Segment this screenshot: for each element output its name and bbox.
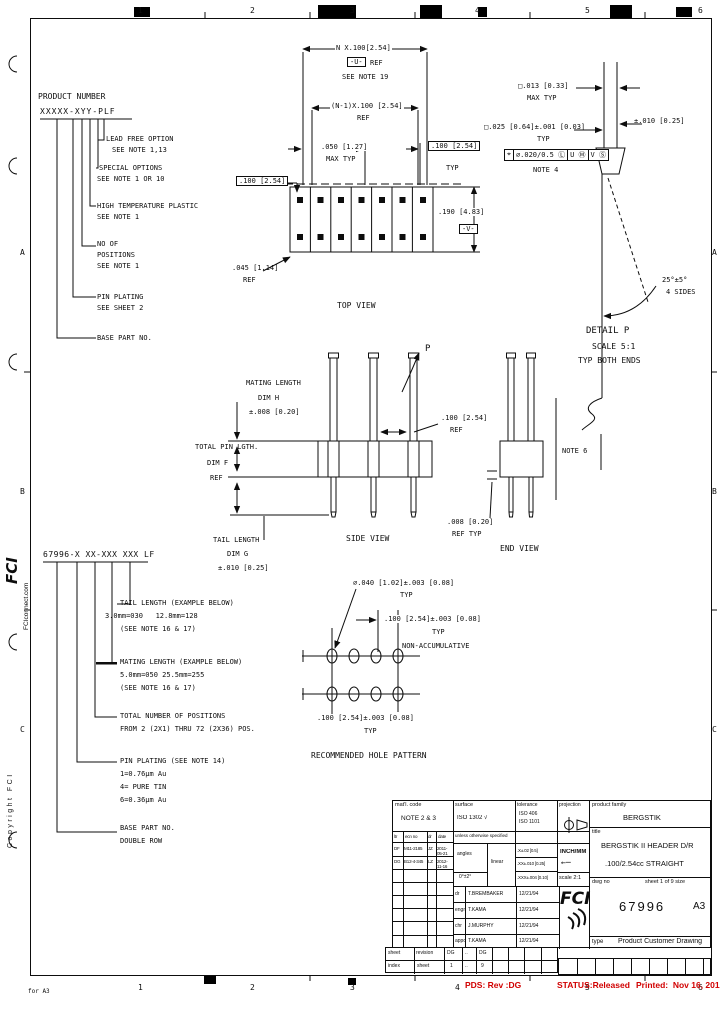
- print-mark: [420, 5, 442, 18]
- dim-025: □.025 [0.64]±.001 [0.03]: [484, 123, 585, 131]
- ecn-row1-date: 2011-05-21: [437, 846, 453, 856]
- registration-marks: [9, 56, 17, 848]
- units-arrow-icon: ←─: [561, 858, 585, 867]
- zone-letter-right-b: B: [712, 487, 717, 496]
- dim-050: .050 [1.27]: [320, 143, 368, 151]
- index-sheet-cell-3: 9: [481, 963, 493, 969]
- callout-positions-1: NO OF: [97, 240, 118, 248]
- detail-angle-sub: 4 SIDES: [666, 288, 696, 296]
- index-label-sheet: sheet: [388, 950, 414, 956]
- zone-letter-left-b: B: [20, 487, 25, 496]
- pn-tail-3: (SEE NOTE 16 & 17): [120, 625, 196, 633]
- ecn-header-dr: dr: [428, 834, 436, 839]
- pn-mating-1: MATING LENGTH (EXAMPLE BELOW): [120, 658, 242, 666]
- matl-code-note: NOTE 2 & 3: [401, 815, 457, 822]
- angles-value: 0°±2°: [459, 874, 489, 880]
- ecn-row2-no: B12-4-345: [404, 859, 427, 864]
- hole-pitch-v: .100 [2.54]±.003 [0.08]: [316, 714, 415, 722]
- ecn-row1-ltr: DF: [394, 846, 403, 851]
- tolerance-label: tolerance: [517, 802, 557, 808]
- dim-013-sub: MAX TYP: [527, 94, 557, 102]
- zone-number-bottom-3: 3: [350, 983, 355, 992]
- zone-letter-left-c: C: [20, 725, 25, 734]
- detail-p-label: DETAIL P: [586, 326, 629, 337]
- part-number-code: 67996-X XX-XXX XXX LF: [43, 550, 155, 559]
- index-sheet-cell-2: ..: [465, 963, 476, 969]
- hole-pattern-drawing: [302, 589, 420, 714]
- callout-pin-plating: PIN PLATING: [97, 293, 143, 301]
- callout-pin-plating-note: SEE SHEET 2: [97, 304, 143, 312]
- ecn-row2-ltr: DG: [394, 859, 403, 864]
- surface-value: ISO 1302 √: [457, 815, 515, 821]
- pn-plating-3: 4= PURE TIN: [120, 783, 166, 791]
- surface-label: surface: [455, 802, 513, 808]
- ecn-row1-dr: JZ: [428, 846, 436, 851]
- side-view-label: SIDE VIEW: [346, 534, 389, 543]
- total-pin-length-label: TOTAL PIN LGTH.: [195, 443, 258, 451]
- fci-margin-logo: FCI: [3, 557, 21, 584]
- dim-008-sub: REF TYP: [452, 530, 482, 538]
- dim-100-left: .100 [2.54]: [236, 176, 288, 186]
- dim-n1-pitch: (N-1)X.100 [2.54]: [330, 102, 404, 110]
- pn-base-1: BASE PART NO.: [120, 824, 175, 832]
- corner-note: for A3: [28, 988, 50, 995]
- linear-label: linear: [491, 859, 517, 865]
- tolerance-value-1: ISO 406: [519, 811, 559, 817]
- hole-pitch-h-sub: TYP: [432, 628, 445, 636]
- signoff-chr-role: chr: [455, 923, 465, 929]
- datum-u-ref: REF: [370, 59, 383, 67]
- pn-base-2: DOUBLE ROW: [120, 837, 162, 845]
- product-number-title: PRODUCT NUMBER: [38, 92, 105, 101]
- dim-013: □.013 [0.33]: [518, 82, 569, 90]
- type-label: type: [592, 939, 616, 945]
- datum-u: -U-: [347, 57, 366, 67]
- bottom-cells-strip: [558, 958, 711, 975]
- hole-dia-sub: TYP: [400, 591, 413, 599]
- dim-190: .190 [4.83]: [437, 208, 485, 216]
- linear-tol-3: .XXX±.004 [0.10]: [517, 875, 557, 880]
- top-view-drawing: [263, 49, 480, 271]
- signoff-appd-date: 12/21/94: [519, 938, 557, 944]
- projection-label: projection: [559, 802, 589, 808]
- fcf-datum-v: V Ⓢ: [588, 149, 609, 161]
- linear-tol-2: .XX±.010 [0.25]: [517, 861, 557, 866]
- dim-100-right: .100 [2.54]: [428, 141, 480, 151]
- side-view-pins: [329, 353, 419, 517]
- drawing-title-line2: .100/2.54cc STRAIGHT: [605, 859, 717, 868]
- fci-logo-swoosh: [564, 907, 590, 937]
- fcf-tolerance: ∅.020/0.5 Ⓛ: [513, 149, 568, 161]
- signoff-chr-date: 12/21/94: [519, 923, 557, 929]
- zone-letter-right-a: A: [712, 248, 717, 257]
- pitch-ref-sub: REF: [450, 426, 463, 434]
- index-rev-cell-2: ..: [465, 950, 476, 956]
- print-mark: [204, 976, 216, 984]
- units-label: INCH/MM: [560, 849, 590, 855]
- footer-status: STATUS:Released: [557, 980, 630, 990]
- hole-pitch-h: .100 [2.54]±.003 [0.08]: [383, 615, 482, 623]
- zone-number-top-6: 6: [698, 6, 703, 15]
- dwg-size: A3: [693, 901, 713, 912]
- product-family-label: product family: [592, 802, 672, 808]
- top-view-label: TOP VIEW: [337, 301, 376, 310]
- index-rev-cell-3: DG: [479, 950, 492, 956]
- zone-number-bottom-1: 1: [138, 983, 143, 992]
- zone-number-top-2: 2: [250, 6, 255, 15]
- detail-p-scale: SCALE 5:1: [592, 342, 635, 351]
- callout-positions-2: POSITIONS: [97, 251, 135, 259]
- top-view-pins: [297, 197, 426, 240]
- total-pin-length-dim: DIM F: [207, 459, 228, 467]
- pn-tail-2: 3.0mm=030 12.8mm=128: [105, 612, 198, 620]
- sheet-index-strip: sheet index revision sheet DG .. DG 1 ..…: [385, 947, 558, 973]
- datum-v: -V-: [459, 224, 478, 234]
- pn-mating-2: 5.0mm=050 25.5mm=255: [120, 671, 204, 679]
- dim-n1-ref: REF: [357, 114, 370, 122]
- pitch-ref-dim: .100 [2.54]: [440, 414, 488, 422]
- angles-label: angles: [457, 851, 487, 857]
- title-block: mat'l. code NOTE 2 & 3 ltr ecn no dr dat…: [392, 800, 711, 948]
- dwg-no-label: dwg no: [592, 879, 632, 885]
- zone-number-bottom-4: 4: [455, 983, 460, 992]
- margin-copyright-text: Copyright FCI: [7, 772, 14, 848]
- tail-length-tol: ±.010 [0.25]: [218, 564, 269, 572]
- hole-pitch-v-sub: TYP: [364, 727, 377, 735]
- hole-pitch-h-note: NON-ACCUMULATIVE: [402, 642, 469, 650]
- pn-positions-2: FROM 2 (2X1) THRU 72 (2X36) POS.: [120, 725, 255, 733]
- detail-p-typ: TYP BOTH ENDS: [578, 356, 641, 365]
- zone-number-top-4: 4: [475, 6, 480, 15]
- callout-special-options-note: SEE NOTE 1 OR 10: [97, 175, 164, 183]
- fci-logo: FCI: [560, 889, 589, 947]
- dwg-number: 67996: [619, 899, 689, 914]
- dim-008: .008 [0.20]: [447, 518, 493, 526]
- footer-printed-date: Printed: Nov 16, 2012: [636, 980, 720, 990]
- signoff-engr-date: 12/21/94: [519, 907, 557, 913]
- type-value: Product Customer Drawing: [618, 938, 718, 945]
- callout-high-temp-note: SEE NOTE 1: [97, 213, 139, 221]
- callout-positions-note: SEE NOTE 1: [97, 262, 139, 270]
- signoff-engr-name: T.KAMA: [468, 907, 515, 913]
- signoff-dr-name: T.BREMBAKER: [468, 891, 515, 897]
- zone-number-bottom-2: 2: [250, 983, 255, 992]
- dim-100-right-sub: TYP: [446, 164, 459, 172]
- dim-045-sub: REF: [243, 276, 256, 284]
- hole-dia-dim: ∅.040 [1.02]±.003 [0.08]: [352, 579, 455, 587]
- dim-045: .045 [1.14]: [232, 264, 278, 272]
- mating-length-tol: ±.008 [0.20]: [249, 408, 300, 416]
- callout-special-options: SPECIAL OPTIONS: [99, 164, 162, 172]
- pn-mating-3: (SEE NOTE 16 & 17): [120, 684, 196, 692]
- ecn-header-ltr: ltr: [394, 834, 403, 839]
- hole-pattern-label: RECOMMENDED HOLE PATTERN: [311, 751, 427, 760]
- tail-length-dim: DIM G: [227, 550, 248, 558]
- tolerance-value-2: ISO 1101: [519, 819, 559, 825]
- callout-base-part: BASE PART NO.: [97, 334, 152, 342]
- ecn-row2-dr: LZ: [428, 859, 436, 864]
- print-mark: [610, 5, 632, 18]
- linear-tol-1: .X±.02 [0.5]: [517, 848, 557, 853]
- fcf-datum-u: U Ⓜ: [567, 149, 588, 161]
- signoff-appd-name: T.KAMA: [468, 938, 515, 944]
- product-family-value: BERGSTIK: [623, 813, 713, 822]
- ecn-row2-date: 2012-11-16: [437, 859, 453, 869]
- fcf-note: NOTE 4: [533, 166, 558, 174]
- signoff-engr-role: engr: [455, 907, 465, 913]
- signoff-appd-role: appd: [455, 938, 467, 944]
- drawing-title-line1: BERGSTIK II HEADER D/R: [601, 841, 713, 850]
- signoff-dr-role: dr: [455, 891, 465, 897]
- mating-length-label: MATING LENGTH: [246, 379, 301, 387]
- signoff-chr-name: J.MURPHY: [468, 923, 515, 929]
- footer-pds-rev: PDS: Rev :DG: [465, 980, 521, 990]
- zone-letter-left-a: A: [20, 248, 25, 257]
- feature-control-frame: ⌖ ∅.020/0.5 Ⓛ U Ⓜ V Ⓢ: [504, 149, 609, 161]
- dim-n-pitch: N X.100[2.54]: [335, 44, 392, 52]
- zone-letter-right-c: C: [712, 725, 717, 734]
- end-view-label: END VIEW: [500, 544, 539, 553]
- dim-010: ±.010 [0.25]: [634, 117, 685, 125]
- end-view-drawing: [487, 353, 556, 518]
- callout-high-temp: HIGH TEMPERATURE PLASTIC: [97, 202, 198, 210]
- dim-050-sub: MAX TYP: [326, 155, 356, 163]
- callout-lead-free: LEAD FREE OPTION: [106, 135, 173, 143]
- total-pin-length-ref: REF: [210, 474, 223, 482]
- note-6: NOTE 6: [562, 447, 587, 455]
- detail-angle: 25°±5°: [662, 276, 687, 284]
- index-sheet-label: sheet: [417, 963, 444, 969]
- pn-plating-4: 6=0.36μm Au: [120, 796, 166, 804]
- pn-plating-2: 1=0.76μm Au: [120, 770, 166, 778]
- index-rev-cell-1: DG: [447, 950, 461, 956]
- p-arrow-label: P: [425, 344, 430, 355]
- zone-number-top-1: 1: [138, 6, 143, 15]
- product-number-code: XXXXX-XYY-PLF: [40, 107, 116, 116]
- tail-length-label: TAIL LENGTH: [213, 536, 259, 544]
- mating-length-dim: DIM H: [258, 394, 279, 402]
- margin-website-text: FCIconnect.com: [23, 583, 30, 630]
- pn-positions-1: TOTAL NUMBER OF POSITIONS: [120, 712, 225, 720]
- print-mark: [676, 7, 692, 17]
- matl-code-label: mat'l. code: [395, 802, 451, 808]
- zone-number-top-3: 3: [350, 6, 355, 15]
- index-sheet-cell-1: 1: [450, 963, 462, 969]
- title-label: title: [592, 829, 632, 835]
- callout-lead-free-note: SEE NOTE 1,13: [112, 146, 167, 154]
- sheet-size-label: sheet 1 of 9 size: [645, 879, 715, 885]
- ecn-header-date: date: [438, 834, 453, 839]
- pn-tail-1: TAIL LENGTH (EXAMPLE BELOW): [120, 599, 234, 607]
- signoff-dr-date: 12/21/94: [519, 891, 557, 897]
- zone-number-top-5: 5: [585, 6, 590, 15]
- index-revision-label: revision: [416, 950, 443, 956]
- scale-label: scale 2:1: [559, 875, 589, 881]
- pn-plating-1: PIN PLATING (SEE NOTE 14): [120, 757, 225, 765]
- index-label-index: index: [388, 963, 414, 969]
- ecn-row1-no: M11-2185: [404, 846, 427, 851]
- see-note-19: SEE NOTE 19: [342, 73, 388, 81]
- ecn-header-no: ecn no: [405, 834, 427, 839]
- fci-logo-text: FCI: [560, 889, 590, 909]
- unless-note: unless otherwise specified: [455, 833, 589, 838]
- dim-025-sub: TYP: [537, 135, 550, 143]
